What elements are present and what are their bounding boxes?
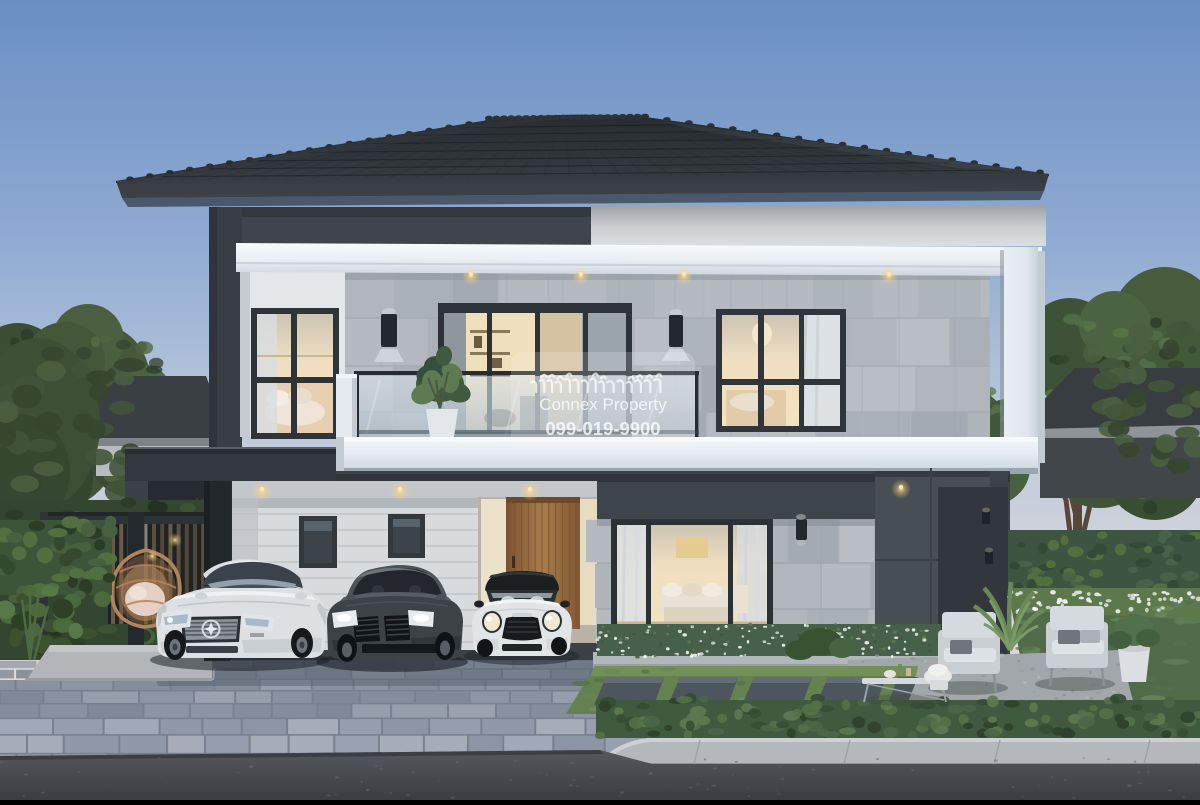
svg-text:099-019-9900: 099-019-9900 xyxy=(545,418,660,439)
svg-text:Connex Property: Connex Property xyxy=(539,395,667,414)
